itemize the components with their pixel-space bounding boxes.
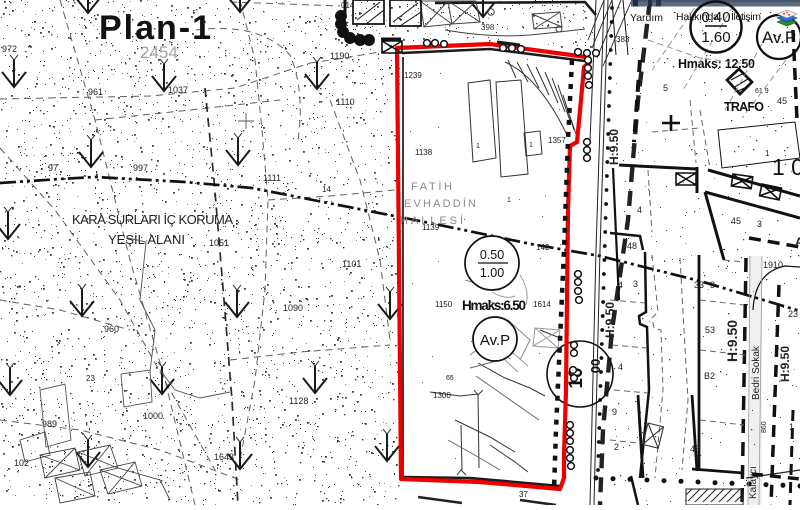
svg-text:142: 142 — [536, 243, 550, 252]
svg-text:960: 960 — [104, 324, 119, 334]
svg-text:61 9: 61 9 — [755, 88, 769, 95]
svg-text:TRAFO: TRAFO — [724, 100, 764, 114]
svg-text:Bedri Sokak: Bedri Sokak — [751, 345, 762, 400]
svg-text:FATİH: FATİH — [411, 180, 456, 193]
svg-text:14: 14 — [322, 185, 331, 194]
svg-text:53: 53 — [705, 325, 715, 335]
svg-text:1110: 1110 — [336, 97, 355, 107]
svg-text:3: 3 — [710, 280, 715, 290]
svg-text:0.50: 0.50 — [480, 248, 504, 262]
svg-text:B2: B2 — [704, 371, 715, 381]
svg-text:Av.P: Av.P — [762, 28, 796, 47]
svg-text:997: 997 — [133, 163, 148, 173]
svg-text:Hmaks: 12.50: Hmaks: 12.50 — [678, 57, 755, 71]
svg-text:1150: 1150 — [435, 300, 453, 309]
svg-text:2454: 2454 — [140, 43, 178, 62]
svg-text:23: 23 — [788, 309, 798, 319]
svg-text:Hmaks:6.50: Hmaks:6.50 — [462, 298, 526, 313]
svg-text:1138: 1138 — [415, 148, 433, 157]
svg-text:1: 1 — [789, 422, 794, 432]
svg-text:1.60: 1.60 — [701, 29, 730, 46]
svg-text:Kalaycı: Kalaycı — [748, 466, 759, 499]
svg-text:1300: 1300 — [433, 391, 451, 400]
svg-text:43: 43 — [690, 444, 700, 454]
svg-text:102: 102 — [14, 458, 29, 468]
svg-text:4: 4 — [637, 205, 642, 215]
svg-text:1: 1 — [529, 142, 533, 149]
svg-text:1190: 1190 — [330, 51, 349, 61]
svg-text:HALLESİ: HALLESİ — [400, 214, 467, 227]
svg-text:65: 65 — [446, 375, 454, 382]
svg-text:1037: 1037 — [168, 85, 188, 95]
svg-text:KARA SURLARI İÇ KORUMA: KARA SURLARI İÇ KORUMA — [72, 212, 234, 227]
svg-text:1239: 1239 — [404, 71, 422, 80]
svg-text:5: 5 — [663, 83, 668, 93]
svg-text:1051: 1051 — [209, 238, 229, 248]
svg-text:1111: 1111 — [263, 173, 281, 183]
svg-text:YEŞİL ALANI: YEŞİL ALANI — [108, 232, 186, 247]
svg-text:1: 1 — [476, 143, 480, 150]
svg-text:398: 398 — [481, 23, 495, 32]
svg-text:1643: 1643 — [214, 452, 234, 462]
svg-text:1614: 1614 — [533, 300, 551, 309]
svg-text:1357: 1357 — [548, 136, 566, 145]
svg-text:97: 97 — [48, 163, 58, 173]
svg-text:Av.P: Av.P — [480, 332, 510, 349]
svg-text:EVHADDİN: EVHADDİN — [404, 197, 480, 210]
svg-text:48: 48 — [627, 241, 637, 251]
svg-text:1910: 1910 — [763, 260, 783, 270]
svg-text:Yardım: Yardım — [630, 12, 663, 24]
svg-text:383: 383 — [616, 35, 630, 44]
svg-text:1000: 1000 — [143, 411, 163, 421]
svg-text:860: 860 — [761, 421, 768, 433]
svg-text:1101: 1101 — [342, 259, 361, 269]
svg-text:1 0: 1 0 — [772, 154, 800, 180]
svg-text:23: 23 — [86, 374, 95, 383]
svg-text:1.00: 1.00 — [480, 266, 504, 280]
svg-text:2: 2 — [614, 442, 619, 452]
svg-text:4: 4 — [618, 362, 623, 372]
svg-text:4: 4 — [618, 280, 623, 290]
svg-text:45: 45 — [731, 216, 741, 226]
svg-text:1: 1 — [765, 149, 770, 158]
svg-text:3: 3 — [633, 279, 638, 289]
svg-text:33: 33 — [694, 280, 704, 290]
svg-text:3: 3 — [757, 219, 762, 229]
svg-text:972: 972 — [2, 44, 17, 54]
svg-text:1090: 1090 — [283, 303, 303, 313]
svg-text:A: A — [795, 235, 800, 249]
svg-text:0.40: 0.40 — [701, 9, 730, 26]
svg-text:45: 45 — [777, 96, 787, 106]
svg-text:H:9.50: H:9.50 — [724, 320, 740, 362]
svg-text:37: 37 — [519, 490, 528, 499]
svg-text:1128: 1128 — [289, 396, 308, 406]
svg-text:961: 961 — [88, 87, 103, 97]
svg-text:00: 00 — [588, 359, 603, 373]
svg-text:H:9.50: H:9.50 — [778, 346, 792, 382]
svg-text:H:9.50: H:9.50 — [603, 302, 617, 338]
svg-text:1: 1 — [507, 197, 511, 204]
svg-text:9: 9 — [612, 407, 617, 417]
svg-text:H:9.50: H:9.50 — [607, 129, 621, 165]
